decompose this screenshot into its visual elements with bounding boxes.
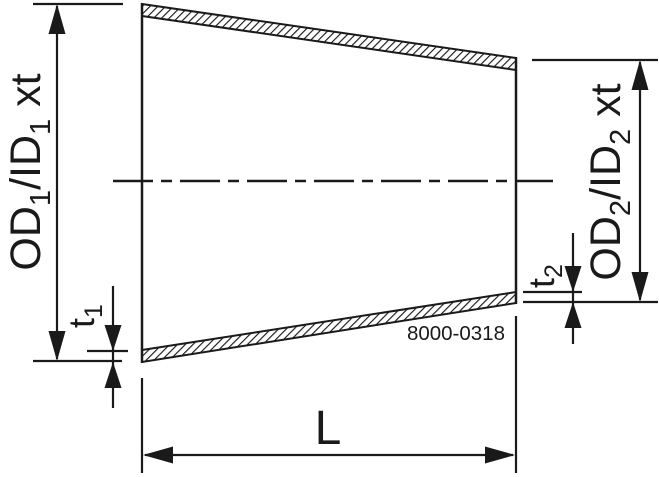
length-label: L [315,402,342,455]
od1-arrow-bottom [49,331,66,361]
t1-arrow-upper [105,325,122,351]
od2-arrow-bottom [632,272,649,302]
length-arrow-right [485,447,515,464]
od1-label: OD1/ID1 xt [2,73,57,270]
drawing-canvas: OD1/ID1 xt t1 OD2/ID2 xt t2 [0,0,659,477]
length-arrow-left [143,447,173,464]
t1-label: t1 [61,304,108,328]
reducer-technical-drawing: OD1/ID1 xt t1 OD2/ID2 xt t2 [0,0,659,477]
t2-label: t2 [521,264,568,288]
od2-arrow-top [632,60,649,90]
reducer-top-wall [142,4,516,70]
drawing-number: 8000-0318 [407,322,505,345]
od1-arrow-top [49,4,66,34]
t2-arrow-lower [565,302,582,328]
t2-dimension: t2 [521,233,582,344]
t1-dimension: t1 [61,286,128,408]
t1-arrow-lower [105,362,122,388]
od2-label: OD2/ID2 xt [582,83,637,280]
